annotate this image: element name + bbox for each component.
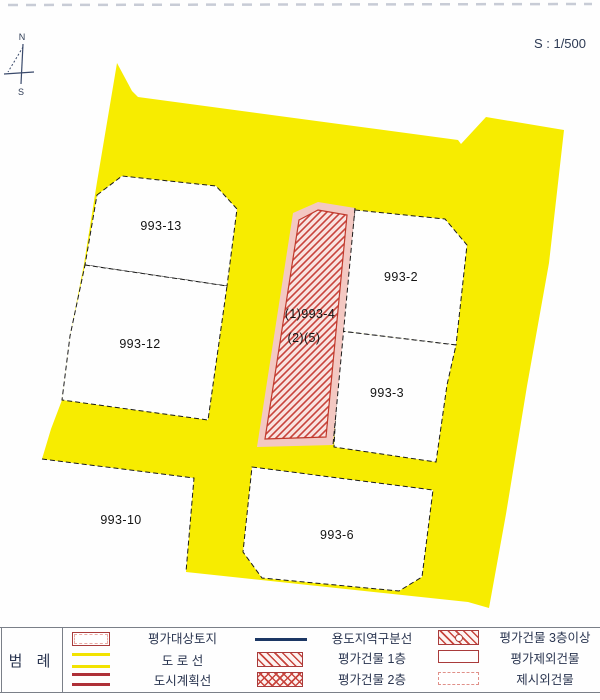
scale-label: S : 1/500 — [534, 36, 586, 51]
parcel-label-993-2: 993-2 — [384, 270, 418, 284]
appraisal-map-page: 993-13 993-12 993-2 993-3 993-6 993-10 (… — [0, 0, 600, 700]
parcel-label-993-6: 993-6 — [320, 528, 354, 542]
parcel-label-993-12: 993-12 — [119, 337, 160, 351]
target-parcel-label-line2: (2)(5) — [288, 331, 321, 345]
legend-title: 범 례 — [4, 650, 60, 671]
parcel-label-993-3: 993-3 — [370, 386, 404, 400]
legend-top-border — [0, 627, 600, 628]
legend-label-unreported-building: 제시외건물 — [493, 672, 597, 688]
legend-label-building-3f-plus: 평가건물 3층이상 — [493, 630, 597, 646]
legend-bottom-border — [0, 692, 600, 693]
legend-symbol-building-2f — [257, 672, 303, 687]
parcel-label-993-10: 993-10 — [100, 513, 141, 527]
map-svg: 993-13 993-12 993-2 993-3 993-6 993-10 (… — [0, 0, 600, 620]
parcel-label-993-13: 993-13 — [140, 219, 181, 233]
legend-symbol-building-3f-plus — [438, 630, 479, 645]
legend-symbol-road-line-2 — [72, 665, 110, 668]
legend-symbol-road-line-1 — [72, 653, 110, 656]
legend-symbol-cityplan-line-2 — [72, 683, 110, 686]
legend-symbol-cityplan-line-1 — [72, 673, 110, 676]
compass-south-label: S — [18, 87, 24, 97]
legend-label-target-parcel: 평가대상토지 — [140, 631, 225, 647]
legend-label-building-1f: 평가건물 1층 — [326, 651, 418, 667]
legend-symbol-excluded-building — [438, 650, 479, 663]
legend-symbol-building-1f — [257, 652, 303, 667]
legend-symbol-target-parcel — [72, 632, 110, 646]
legend-label-zoning-line: 용도지역구분선 — [326, 631, 418, 647]
legend-label-cityplan-line: 도시계획선 — [140, 673, 225, 689]
legend-label-road-line: 도 로 선 — [140, 653, 225, 669]
legend-title-divider — [62, 627, 63, 692]
target-parcel-label-line1: (1)993-4 — [285, 307, 335, 321]
legend: 범 례 평가대상토지 도 로 선 도시계획선 용도지역구분선 평가건물 1층 평… — [0, 620, 600, 700]
compass-north-label: N — [19, 32, 26, 42]
legend-label-excluded-building: 평가제외건물 — [493, 651, 597, 667]
page-top-dashed-line — [8, 4, 592, 5]
legend-label-building-2f: 평가건물 2층 — [326, 672, 418, 688]
legend-symbol-unreported-building — [438, 672, 479, 685]
legend-left-border — [1, 627, 2, 692]
legend-symbol-zoning-line — [255, 638, 307, 641]
north-arrow-icon: N S — [4, 32, 34, 97]
